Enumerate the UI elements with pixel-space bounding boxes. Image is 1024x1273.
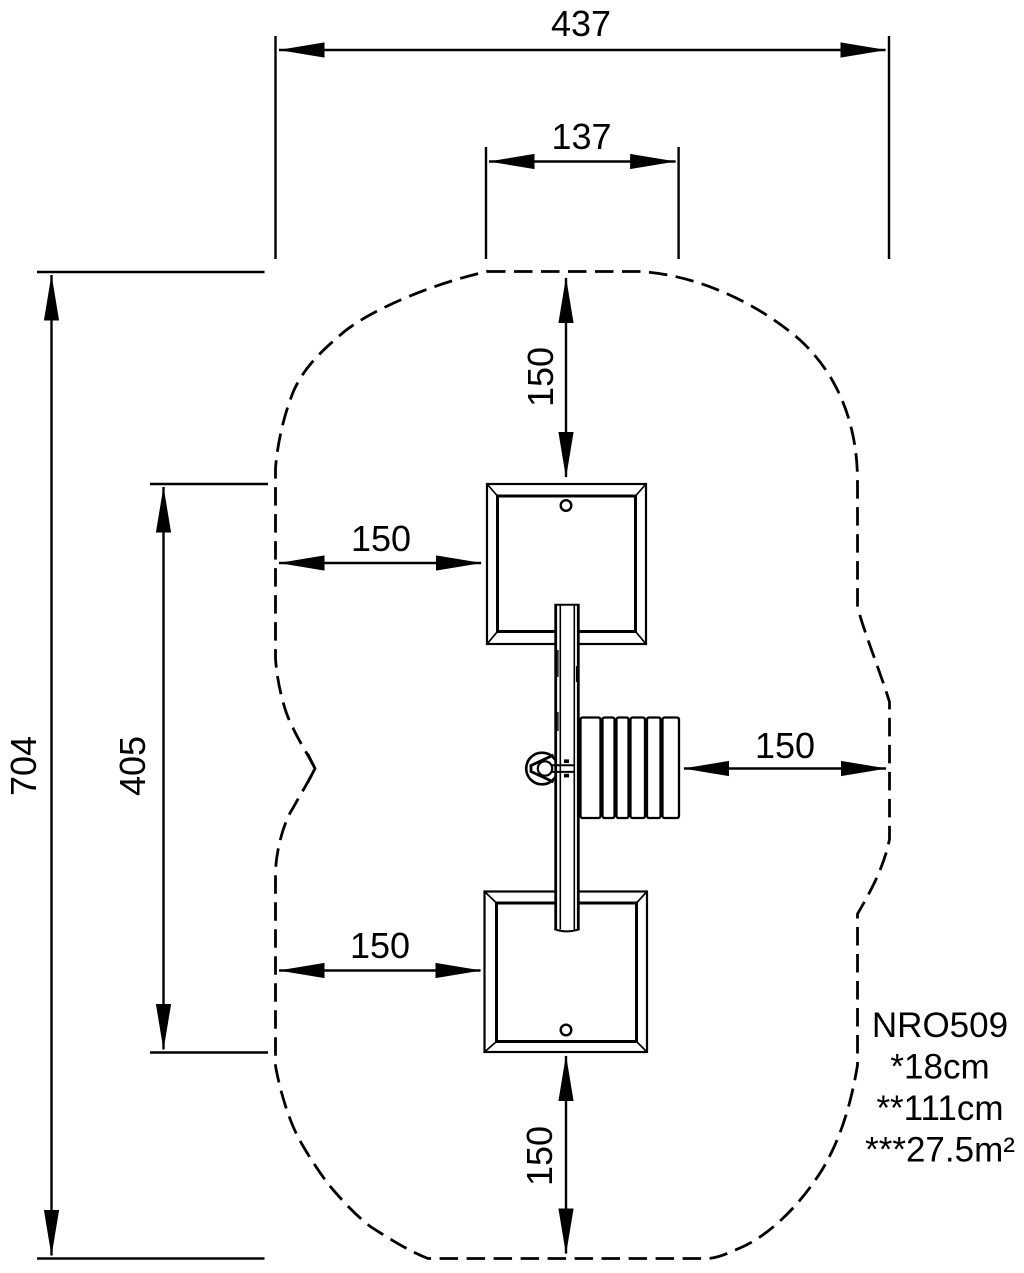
svg-text:437: 437 xyxy=(551,3,611,44)
svg-text:150: 150 xyxy=(350,925,410,966)
svg-text:150: 150 xyxy=(755,725,815,766)
svg-text:150: 150 xyxy=(351,518,411,559)
svg-text:405: 405 xyxy=(112,736,153,796)
svg-text:NRO509: NRO509 xyxy=(872,1006,1008,1045)
svg-text:150: 150 xyxy=(519,1126,560,1186)
svg-text:**111cm: **111cm xyxy=(876,1089,1003,1128)
svg-text:137: 137 xyxy=(551,116,611,157)
svg-text:***27.5m²: ***27.5m² xyxy=(865,1131,1015,1170)
svg-text:*18cm: *18cm xyxy=(890,1048,989,1087)
svg-text:150: 150 xyxy=(520,347,561,407)
svg-text:704: 704 xyxy=(3,736,44,796)
